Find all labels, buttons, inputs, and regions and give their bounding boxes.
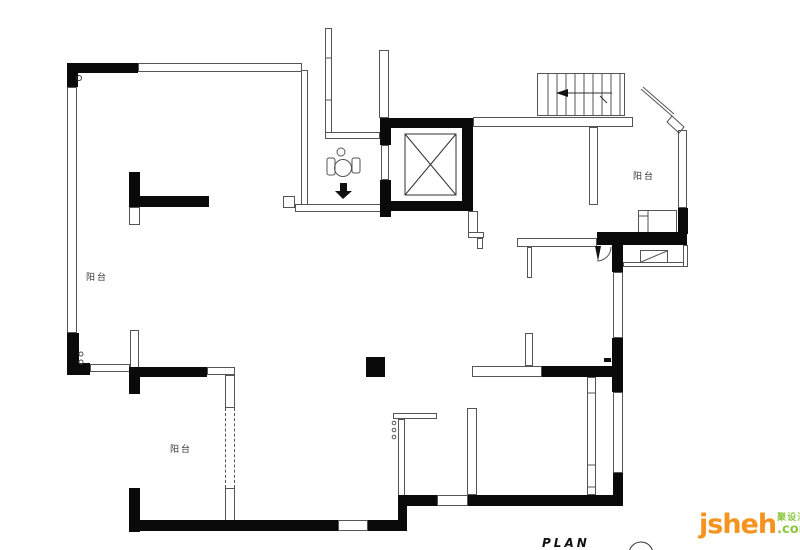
hinge-dots [392,421,396,439]
door-swing [595,246,611,261]
plan-linework [0,0,800,550]
partition-ticks [325,58,611,487]
floor-plan: 阳台 阳台 阳台 PLAN jsheh 聚设汇 .com [0,0,800,550]
entry-arrow-icon [335,183,352,199]
window-seat-inner-line [639,211,648,232]
logo-name: jsheh [699,511,776,538]
jsheh-logo: jsheh 聚设汇 .com [699,511,800,538]
staircase-treads [548,74,620,115]
cabinet-hatch-line [641,251,667,262]
tap-symbols [79,352,83,364]
balcony-label-right: 阳台 [633,169,655,182]
logo-suffix: .com [777,523,800,536]
plan-title: PLAN [542,536,590,550]
dining-set [327,148,360,177]
compass-icon [629,542,653,550]
bay-door-diagonal [641,87,684,133]
logo-side: 聚设汇 .com [777,514,800,536]
elevator-cross [405,134,456,195]
balcony-label-left: 阳台 [86,270,108,283]
corner-pin [77,76,82,81]
balcony-label-bottom: 阳台 [170,442,192,455]
